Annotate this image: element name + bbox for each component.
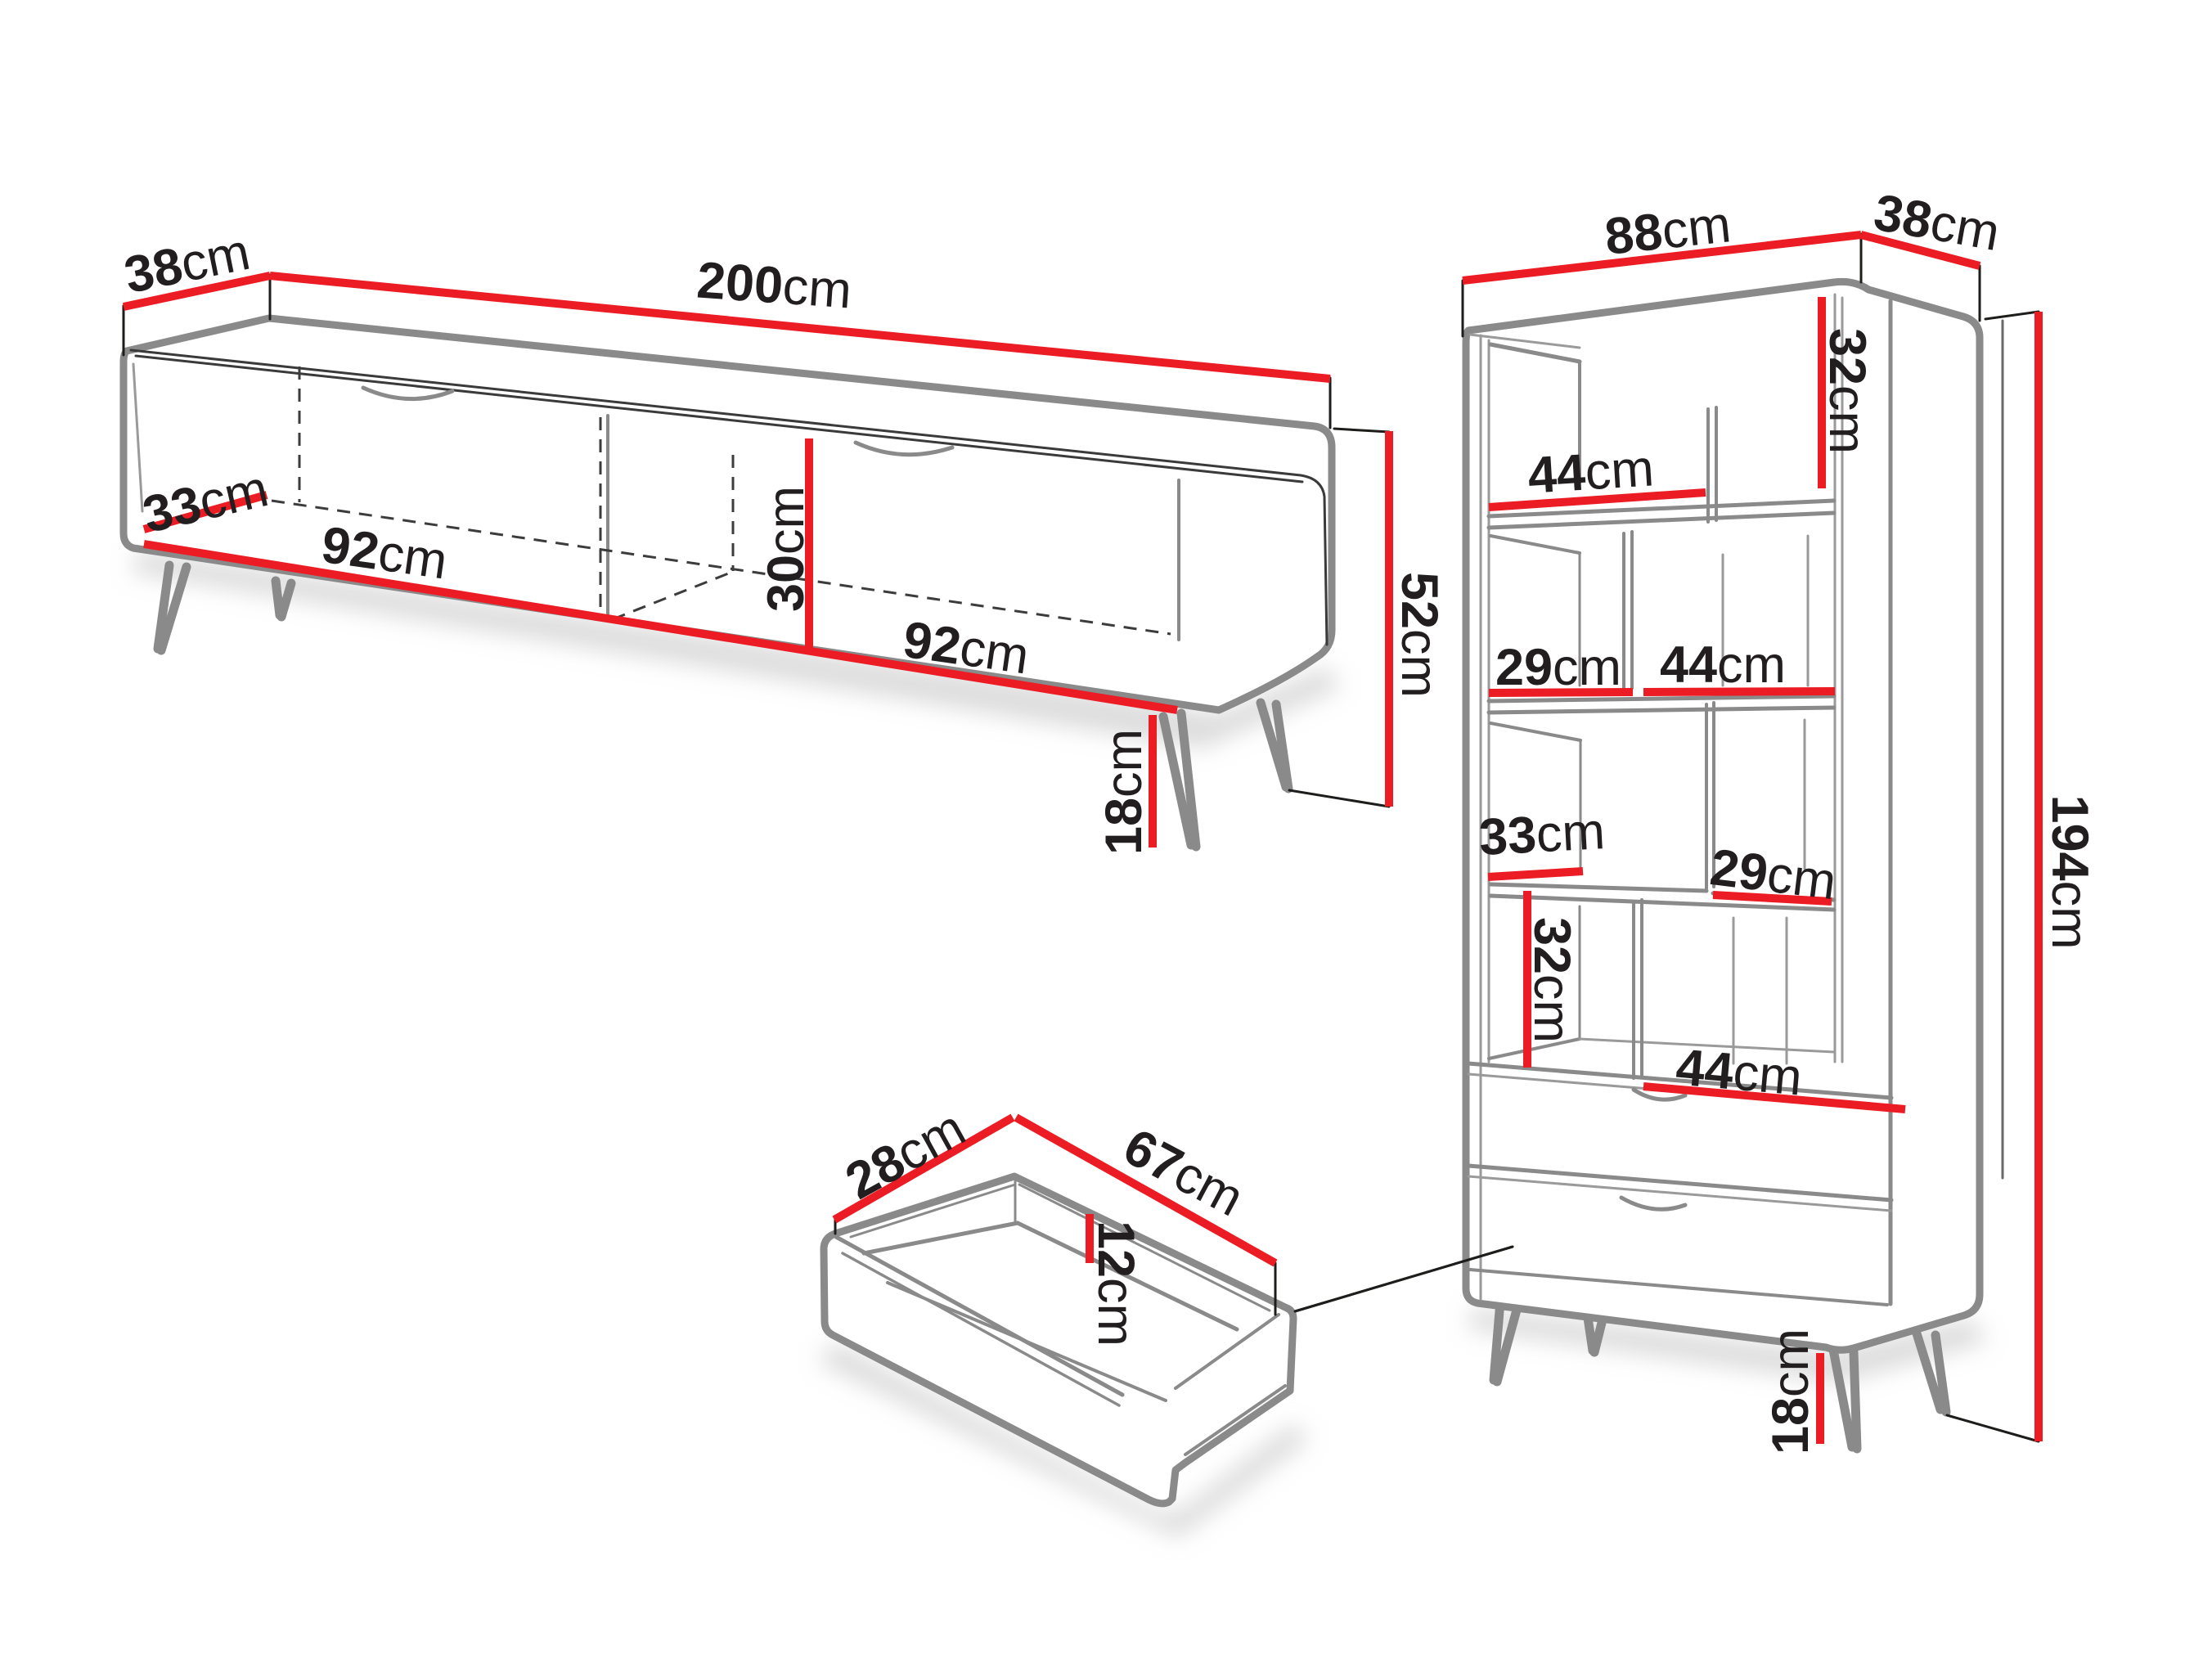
svg-text:32cm: 32cm	[1523, 917, 1580, 1043]
svg-text:18cm: 18cm	[1095, 729, 1153, 855]
svg-text:33cm: 33cm	[1477, 803, 1607, 866]
svg-text:52cm: 52cm	[1391, 572, 1448, 698]
svg-text:200cm: 200cm	[695, 252, 854, 320]
svg-text:194cm: 194cm	[2041, 794, 2098, 949]
svg-text:44cm: 44cm	[1526, 439, 1656, 504]
svg-text:30cm: 30cm	[758, 486, 815, 612]
svg-text:12cm: 12cm	[1087, 1221, 1144, 1347]
svg-text:32cm: 32cm	[1819, 328, 1876, 454]
svg-text:18cm: 18cm	[1762, 1329, 1819, 1454]
svg-text:44cm: 44cm	[1660, 636, 1786, 694]
svg-text:29cm: 29cm	[1495, 639, 1621, 696]
svg-text:44cm: 44cm	[1674, 1038, 1805, 1106]
